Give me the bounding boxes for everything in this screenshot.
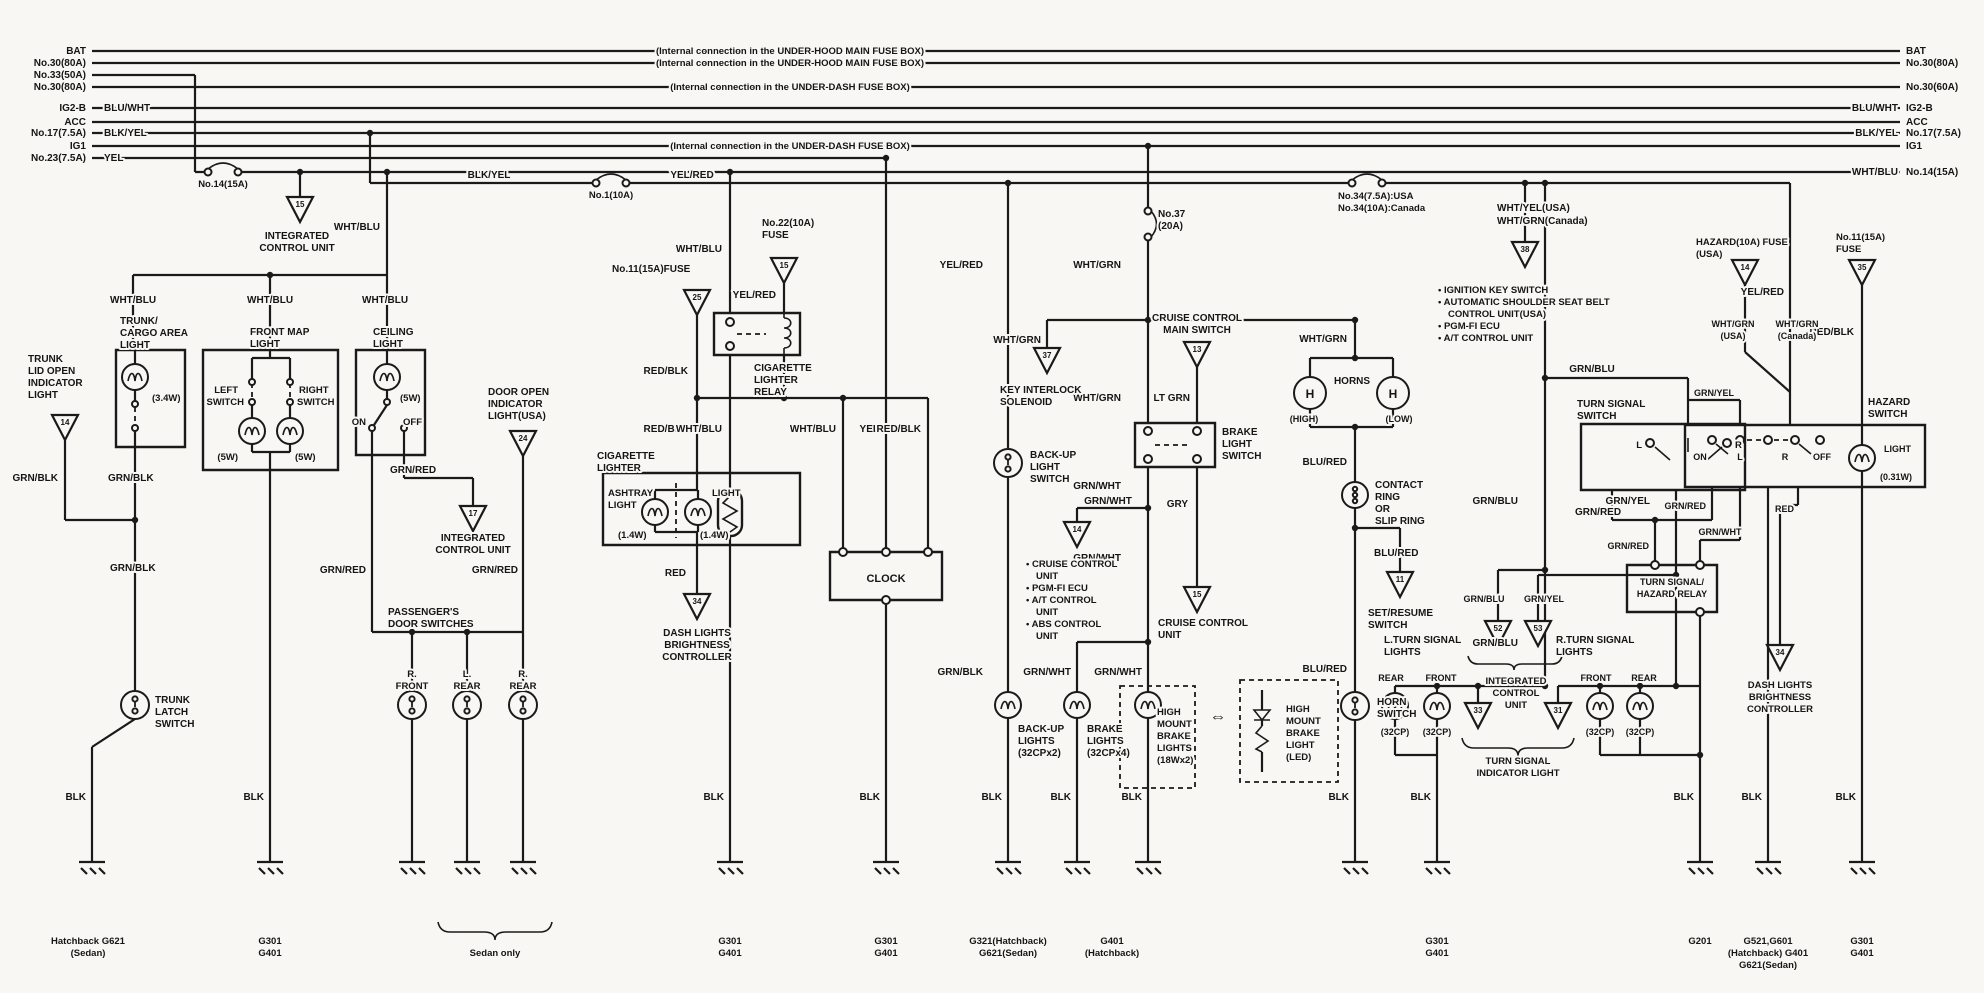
component-label: INDICATOR — [488, 399, 543, 410]
component-label: DASH LIGHTS — [663, 628, 731, 639]
ground-label: G401 — [1425, 948, 1449, 959]
component-label: SWITCH — [207, 397, 245, 408]
wire-color-label: BLK — [1741, 792, 1762, 803]
bus-right-label: No.30(60A) — [1906, 82, 1958, 93]
fuse-label: No.14(15A) — [198, 179, 248, 190]
wire-color-label: BLU/RED — [1303, 664, 1347, 675]
component-label: INDICATOR — [28, 378, 83, 389]
ground-label: G521,G601 — [1743, 936, 1793, 947]
component-label: HORNS — [1334, 376, 1370, 387]
fuse-label: (USA) — [1696, 249, 1722, 260]
connector-triangle-11: 11 — [1387, 572, 1413, 597]
bus-note: (Internal connection in the UNDER-DASH F… — [670, 82, 910, 93]
component-label: INTEGRATED — [265, 231, 329, 242]
rating-label: (LOW) — [1386, 414, 1413, 424]
wire-color-label: WHT/YEL(USA) — [1497, 203, 1570, 214]
component-label: REAR — [1378, 673, 1404, 683]
component-label: CRUISE CONTROL — [1152, 313, 1242, 324]
connector-triangle-14: 14 — [52, 415, 78, 440]
list-item: • AUTOMATIC SHOULDER SEAT BELT — [1438, 297, 1610, 308]
component-label: LIGHT — [1286, 740, 1315, 751]
component-label: L. — [463, 669, 471, 680]
component-label: BRAKE — [1087, 724, 1123, 735]
ground-label: G401 — [1100, 936, 1124, 947]
bus-left-label: No.30(80A) — [34, 82, 86, 93]
component-label: LIGHTER — [754, 375, 799, 386]
component-label: TRUNK — [28, 354, 64, 365]
connector-number: 52 — [1494, 624, 1503, 633]
component-label: L.TURN SIGNAL — [1384, 635, 1461, 646]
wire-color-label: BLK/YEL — [1855, 128, 1898, 139]
wire-color-label: GRN/WHT — [1023, 667, 1071, 678]
component-label: L — [1636, 440, 1642, 451]
wire-color-label: GRN/RED — [1664, 501, 1706, 511]
turn-signal-switch-box — [1581, 424, 1745, 490]
connector-number: 34 — [1776, 648, 1785, 657]
component-label: SOLENOID — [1000, 397, 1052, 408]
component-label: SET/RESUME — [1368, 608, 1433, 619]
ground-label: G321(Hatchback) — [969, 936, 1047, 947]
component-label: TURN SIGNAL/ — [1640, 577, 1704, 587]
connector-number: 38 — [1521, 245, 1530, 254]
component-label: SWITCH — [1222, 451, 1261, 462]
list-item: CONTROL UNIT(USA) — [1448, 309, 1546, 320]
component-label: LIGHTER — [597, 463, 642, 474]
component-label: CEILING — [373, 327, 414, 338]
component-label: INTEGRATED — [1485, 676, 1546, 687]
ground-label: (Hatchback) — [1085, 948, 1139, 959]
component-label: SWITCH — [297, 397, 335, 408]
fuse-icon — [593, 174, 630, 187]
connector-number: 35 — [1858, 263, 1867, 272]
component-label: R — [1782, 452, 1789, 462]
component-label: R. — [518, 669, 528, 680]
fuse-icon — [1145, 208, 1157, 241]
connector-number: 15 — [1193, 590, 1202, 599]
connector-triangle-24: 24 — [510, 431, 536, 456]
fuse-label: No.22(10A) — [762, 218, 814, 229]
connector-number: 15 — [780, 261, 789, 270]
fuse-label: No.34(7.5A):USA — [1338, 191, 1414, 202]
wire-color-label: BLK — [1835, 792, 1856, 803]
connector-triangle-31: 31 — [1545, 703, 1571, 728]
component-label: BRIGHTNESS — [664, 640, 730, 651]
wire-color-label: YEL/RED — [940, 260, 983, 271]
wire-color-label: WHT/BLU — [676, 424, 722, 435]
brace — [1462, 738, 1574, 756]
wire-color-label: BLK/YEL — [104, 128, 147, 139]
fuse-label: No.1(10A) — [589, 190, 633, 201]
component-label: SLIP RING — [1375, 516, 1425, 527]
ground-label: G401 — [718, 948, 742, 959]
wire-color-label: RED/BLK — [877, 424, 922, 435]
component-label: REAR — [510, 681, 537, 692]
component-label: CRUISE CONTROL — [1158, 618, 1248, 629]
wire-color-label: BLK — [1673, 792, 1694, 803]
component-label: LIGHT — [608, 500, 637, 511]
rating-label: (32CPx4) — [1087, 748, 1130, 759]
ground-label: G201 — [1688, 936, 1712, 947]
wire-color-label: GRN/RED — [1575, 507, 1621, 518]
component-label: SWITCH — [1030, 474, 1069, 485]
symbols — [79, 130, 1875, 940]
component-label: UNIT — [1158, 630, 1181, 641]
equivalence-arrow-icon: ⇔ — [1210, 707, 1227, 726]
component-label: LIGHTS — [1018, 736, 1055, 747]
ground-label: G301 — [1850, 936, 1874, 947]
component-label: FRONT — [1426, 673, 1457, 683]
component-label: DASH LIGHTS — [1748, 680, 1812, 691]
wire-color-label: BLK — [1410, 792, 1431, 803]
component-label: ASHTRAY — [608, 488, 654, 499]
ground-label: Sedan only — [470, 948, 521, 959]
wire-color-label: WHT/BLU — [362, 295, 408, 306]
component-label: INDICATOR LIGHT — [1476, 768, 1559, 779]
wiring-diagram: 1514172425153437131415381152533331143534… — [0, 0, 1984, 993]
wire-color-label: GRN/WHT — [1699, 527, 1742, 537]
component-label: R. — [407, 669, 417, 680]
wiring-diagram-page: 1514172425153437131415381152533331143534… — [0, 0, 1984, 993]
wire-color-label: BLU/WHT — [1852, 103, 1898, 114]
bus-right-label: No.30(80A) — [1906, 58, 1958, 69]
component-label: DOOR SWITCHES — [388, 619, 474, 630]
component-label: HORN — [1377, 697, 1406, 708]
wire-color-label: GRN/RED — [1607, 541, 1649, 551]
wire-color-label: GRY — [1167, 499, 1189, 510]
fuse-icon — [1349, 174, 1386, 187]
connector-number: 31 — [1554, 706, 1563, 715]
connector-triangle-15: 15 — [1184, 587, 1210, 612]
wire-color-label: BLK — [703, 792, 724, 803]
component-label: LIGHT — [1030, 462, 1060, 473]
wire-color-label: RED — [665, 568, 686, 579]
wire-color-label: GRN/BLU — [1569, 364, 1615, 375]
component-label: R.TURN SIGNAL — [1556, 635, 1634, 646]
bus-left-label: IG2-B — [59, 103, 86, 114]
connector-number: 15 — [296, 200, 305, 209]
component-label: HAZARD RELAY — [1637, 589, 1707, 599]
wire-color-label: YEL/RED — [670, 170, 713, 181]
rating-label: (5W) — [295, 452, 316, 463]
bus-left-label: No.33(50A) — [34, 70, 86, 81]
component-label: LIGHT — [120, 340, 150, 351]
wire-color-label: BLK — [243, 792, 264, 803]
wire-color-label: BLU/RED — [1374, 548, 1418, 559]
wire-color-label: (Canada) — [1778, 331, 1817, 341]
wire-color-label: WHT/BLU — [676, 244, 722, 255]
wire-color-label: WHT/BLU — [790, 424, 836, 435]
wire-color-label: GRN/BLK — [110, 563, 156, 574]
rating-label: (32CP) — [1381, 727, 1410, 737]
connector-triangle-14: 14 — [1064, 522, 1090, 547]
rating-label: (32CP) — [1626, 727, 1655, 737]
wire-color-label: GRN/BLU — [1472, 638, 1518, 649]
wire-color-label: WHT/GRN — [1073, 260, 1121, 271]
wire-color-label: RED/BLK — [644, 366, 689, 377]
ground-label: G301 — [1425, 936, 1449, 947]
component-label: OFF — [403, 417, 422, 428]
connector-number: 14 — [1741, 263, 1750, 272]
component-label: LIGHTS — [1157, 743, 1192, 754]
component-label: BRAKE — [1222, 427, 1258, 438]
component-label: KEY INTERLOCK — [1000, 385, 1082, 396]
bus-note: (Internal connection in the UNDER-HOOD M… — [656, 46, 924, 57]
component-label: TRUNK — [155, 695, 191, 706]
wire-color-label: GRN/BLU — [1464, 594, 1505, 604]
component-label: LIGHTS — [1087, 736, 1124, 747]
connector-triangle-34: 34 — [684, 594, 710, 619]
rating-label: (0.31W) — [1880, 472, 1912, 482]
component-label: CONTROLLER — [1747, 704, 1813, 715]
list-item: • A/T CONTROL UNIT — [1438, 333, 1533, 344]
bus-right-label: BAT — [1906, 46, 1926, 57]
wire-color-label: YEL/RED — [1741, 287, 1784, 298]
connector-triangle-35: 35 — [1849, 260, 1875, 285]
rating-label: (1.4W) — [618, 530, 647, 541]
ground-label: (Hatchback) G401 — [1728, 948, 1809, 959]
wire-color-label: GRN/BLK — [937, 667, 983, 678]
connector-number: 17 — [469, 509, 478, 518]
wire-color-label: BLK — [1121, 792, 1142, 803]
connector-triangles: 1514172425153437131415381152533331143534 — [52, 197, 1875, 728]
wire-color-label: BLK — [981, 792, 1002, 803]
component-label: CLOCK — [866, 573, 905, 585]
ground-label: G301 — [718, 936, 742, 947]
component-label: LIGHT — [28, 390, 58, 401]
component-label: CONTROL — [1493, 688, 1540, 699]
wire-color-label: YEL — [104, 153, 123, 164]
connector-number: 33 — [1474, 706, 1483, 715]
wire-color-label: GRN/BLK — [12, 473, 58, 484]
bus-left-label: ACC — [64, 117, 86, 128]
component-label: CARGO AREA — [120, 328, 188, 339]
component-label: REAR — [454, 681, 481, 692]
ground-label: (Sedan) — [71, 948, 106, 959]
ground-label: G401 — [1850, 948, 1874, 959]
component-label: TURN SIGNAL — [1577, 399, 1645, 410]
connector-number: 11 — [1396, 575, 1405, 584]
wire-color-label: WHT/BLU — [334, 222, 380, 233]
wire-color-label: YEL/RED — [733, 290, 776, 301]
bus-left-label: No.23(7.5A) — [31, 153, 86, 164]
component-label: R — [1735, 440, 1742, 451]
component-label: PASSENGER'S — [388, 607, 459, 618]
ground-label: G401 — [258, 948, 282, 959]
rating-label: (HIGH) — [1290, 414, 1319, 424]
fuse-label: No.37 — [1158, 209, 1186, 220]
component-label: LATCH — [155, 707, 188, 718]
wire-color-label: BLK — [1050, 792, 1071, 803]
wire-color-label: BLU/WHT — [104, 103, 150, 114]
wire-color-label: GRN/WHT — [1094, 667, 1142, 678]
bus-wires — [92, 51, 1900, 425]
list-item: • PGM-FI ECU — [1438, 321, 1500, 332]
component-label: RELAY — [754, 387, 787, 398]
wire-color-label: GRN/RED — [472, 565, 518, 576]
wire-color-label: BLK — [1328, 792, 1349, 803]
component-label: LIGHTS — [1384, 647, 1421, 658]
bus-left-label: No.17(7.5A) — [31, 128, 86, 139]
bus-left-label: BAT — [66, 46, 86, 57]
wire-color-label: WHT/BLU — [247, 295, 293, 306]
wire-color-label: GRN/BLK — [108, 473, 154, 484]
bus-right-label: IG2-B — [1906, 103, 1933, 114]
horn-symbol-letter: H — [1389, 387, 1398, 401]
rating-label: (3.4W) — [152, 393, 181, 404]
ground-label: G401 — [874, 948, 898, 959]
brace — [438, 922, 552, 940]
list-item: UNIT — [1036, 631, 1058, 642]
component-label: MOUNT — [1286, 716, 1321, 727]
ground-label: G621(Sedan) — [1739, 960, 1797, 971]
brace — [1468, 656, 1562, 670]
wire-color-label: WHT/BLU — [110, 295, 156, 306]
connector-number: 14 — [1073, 525, 1082, 534]
fuse-label: No.11(15A)FUSE — [612, 264, 691, 275]
component-label: HAZARD — [1868, 397, 1910, 408]
component-label: TURN SIGNAL — [1486, 756, 1551, 767]
connector-triangle-25: 25 — [684, 290, 710, 315]
component-label: L — [1737, 452, 1743, 462]
wire-color-label: GRN/WHT — [1084, 496, 1132, 507]
connector-triangle-53: 53 — [1525, 621, 1551, 646]
bus-right-label: IG1 — [1906, 141, 1923, 152]
component-label: BACK-UP — [1030, 450, 1076, 461]
connector-number: 25 — [693, 293, 702, 302]
component-label: BRAKE — [1286, 728, 1320, 739]
component-label: HIGH — [1157, 707, 1181, 718]
wire-color-label: GRN/YEL — [1694, 388, 1735, 398]
component-label: CONTROL UNIT — [435, 545, 510, 556]
wire-color-label: BLK — [859, 792, 880, 803]
ground-label: G301 — [258, 936, 282, 947]
fuse-label: No.11(15A) — [1836, 232, 1885, 243]
connector-triangle-37: 37 — [1034, 348, 1060, 373]
component-label: LIGHT — [712, 488, 741, 499]
wire-color-label: WHT/GRN — [1712, 319, 1755, 329]
component-label: TRUNK/ — [120, 316, 158, 327]
list-item: • CRUISE CONTROL — [1026, 559, 1118, 570]
component-label: CIGARETTE — [754, 363, 812, 374]
connector-number: 14 — [61, 418, 70, 427]
component-label: BRIGHTNESS — [1749, 692, 1811, 703]
connector-triangle-17: 17 — [460, 506, 486, 531]
component-label: UNIT — [1505, 700, 1527, 711]
rating-label: (1.4W) — [700, 530, 729, 541]
component-label: OR — [1375, 504, 1391, 515]
component-label: DOOR OPEN — [488, 387, 549, 398]
wire-color-label: WHT/GRN(Canada) — [1497, 216, 1588, 227]
connector-triangle-13: 13 — [1184, 342, 1210, 367]
fuse-label: FUSE — [762, 230, 789, 241]
wire-color-label: GRN/YEL — [1606, 496, 1650, 507]
connector-number: 53 — [1534, 624, 1543, 633]
backup-brake-horn-wires — [1008, 146, 1400, 862]
component-label: ON — [1693, 452, 1707, 462]
component-label: LIGHTS — [1556, 647, 1593, 658]
wire-color-label: GRN/YEL — [1524, 594, 1565, 604]
bus-right-label: No.17(7.5A) — [1906, 128, 1961, 139]
component-label: CIGARETTE — [597, 451, 655, 462]
wire-color-label: GRN/RED — [320, 565, 366, 576]
component-label: SWITCH — [1368, 620, 1407, 631]
fuse-label: No.34(10A):Canada — [1338, 203, 1426, 214]
list-item: • ABS CONTROL — [1026, 619, 1101, 630]
component-label: SWITCH — [1577, 411, 1616, 422]
wire-color-label: RED — [1775, 504, 1795, 514]
wire-color-label: WHT/GRN — [1299, 334, 1347, 345]
component-label: BACK-UP — [1018, 724, 1064, 735]
ground-label: G621(Sedan) — [979, 948, 1037, 959]
component-label: SWITCH — [155, 719, 194, 730]
rating-label: (5W) — [400, 393, 421, 404]
wire-color-label: WHT/GRN — [1776, 319, 1819, 329]
bus-left-label: IG1 — [70, 141, 87, 152]
connector-number: 24 — [519, 434, 528, 443]
list-item: UNIT — [1036, 607, 1058, 618]
connector-number: 37 — [1043, 351, 1052, 360]
list-item: UNIT — [1036, 571, 1058, 582]
component-label: FRONT — [396, 681, 429, 692]
component-label: LIGHT — [250, 339, 280, 350]
component-label: MOUNT — [1157, 719, 1192, 730]
component-label: HIGH — [1286, 704, 1310, 715]
wire-color-label: (USA) — [1721, 331, 1746, 341]
connector-triangle-34: 34 — [1767, 645, 1793, 670]
ground-label: Hatchback G621 — [51, 936, 126, 947]
wire-color-label: GRN/WHT — [1073, 481, 1121, 492]
component-label: LIGHT(USA) — [488, 411, 546, 422]
component-label: MAIN SWITCH — [1163, 325, 1231, 336]
component-label: LIGHT — [373, 339, 403, 350]
connector-triangle-38: 38 — [1512, 242, 1538, 267]
bus-note: (Internal connection in the UNDER-HOOD M… — [656, 58, 924, 69]
wire-color-label: BLK/YEL — [468, 170, 511, 181]
component-label: LIGHT — [1884, 444, 1911, 454]
bus-right-label: No.14(15A) — [1906, 167, 1958, 178]
component-label: FRONT — [1581, 673, 1612, 683]
component-label: ON — [352, 417, 366, 428]
list-item: • PGM-FI ECU — [1026, 583, 1088, 594]
wire-color-label: LT GRN — [1154, 393, 1190, 404]
fuse-label: (20A) — [1158, 221, 1183, 232]
component-label: LEFT — [214, 385, 238, 396]
connector-number: 13 — [1193, 345, 1202, 354]
component-label: LID OPEN — [28, 366, 75, 377]
rating-label: (5W) — [217, 452, 238, 463]
connector-number: 34 — [693, 597, 702, 606]
connector-triangle-15: 15 — [771, 258, 797, 283]
wire-color-label: WHT/GRN — [993, 335, 1041, 346]
fuse-label: FUSE — [1836, 244, 1861, 255]
component-label: RIGHT — [299, 385, 329, 396]
horn-symbol-letter: H — [1306, 387, 1315, 401]
wire-color-label: GRN/BLU — [1472, 496, 1518, 507]
rating-label: (32CP) — [1423, 727, 1452, 737]
wire-color-label: BLK — [65, 792, 86, 803]
wire-color-label: GRN/RED — [390, 465, 436, 476]
bus-left-label: No.30(80A) — [34, 58, 86, 69]
bus-right-label: ACC — [1906, 117, 1928, 128]
component-label: CONTROLLER — [662, 652, 732, 663]
component-label: FRONT MAP — [250, 327, 310, 338]
wire-color-label: WHT/BLU — [1852, 167, 1898, 178]
component-label: INTEGRATED — [441, 533, 505, 544]
component-label: SWITCH — [1377, 709, 1416, 720]
rating-label: (32CP) — [1586, 727, 1615, 737]
component-label: BRAKE — [1157, 731, 1191, 742]
fuse-label: HAZARD(10A) FUSE — [1696, 237, 1788, 248]
